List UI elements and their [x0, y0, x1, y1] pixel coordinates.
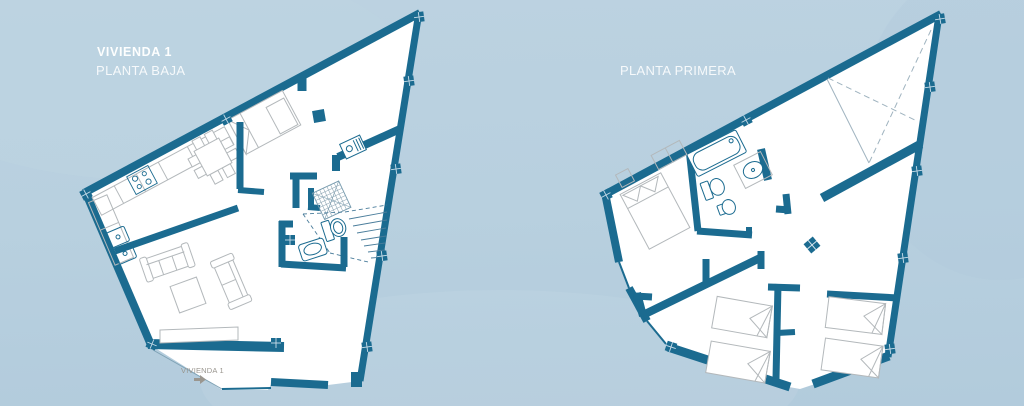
- svg-text:VIVIENDA 1: VIVIENDA 1: [97, 45, 172, 59]
- svg-text:PLANTA PRIMERA: PLANTA PRIMERA: [620, 63, 736, 78]
- svg-text:PLANTA BAJA: PLANTA BAJA: [96, 63, 185, 78]
- svg-text:VIVIENDA 1: VIVIENDA 1: [181, 366, 224, 375]
